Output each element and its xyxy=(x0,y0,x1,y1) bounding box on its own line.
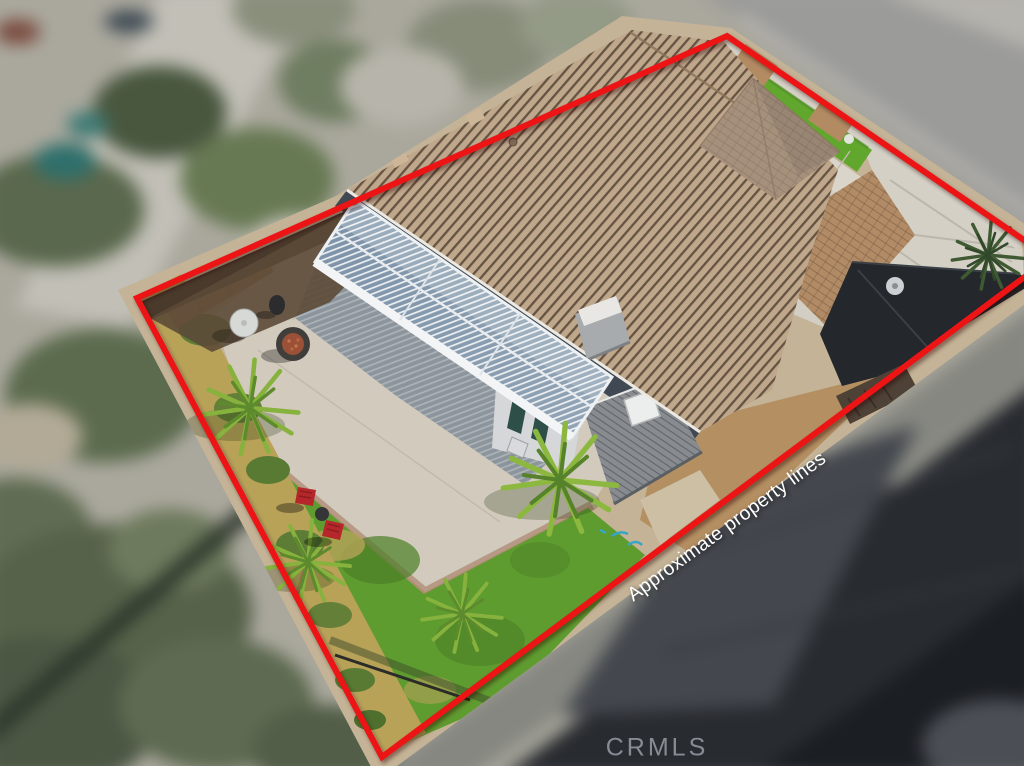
aerial-photo: Approximate property lines CRMLS xyxy=(0,0,1024,766)
crmls-watermark: CRMLS xyxy=(606,734,709,763)
property-line-polygon xyxy=(137,36,1024,757)
property-boundary-overlay xyxy=(0,0,1024,766)
